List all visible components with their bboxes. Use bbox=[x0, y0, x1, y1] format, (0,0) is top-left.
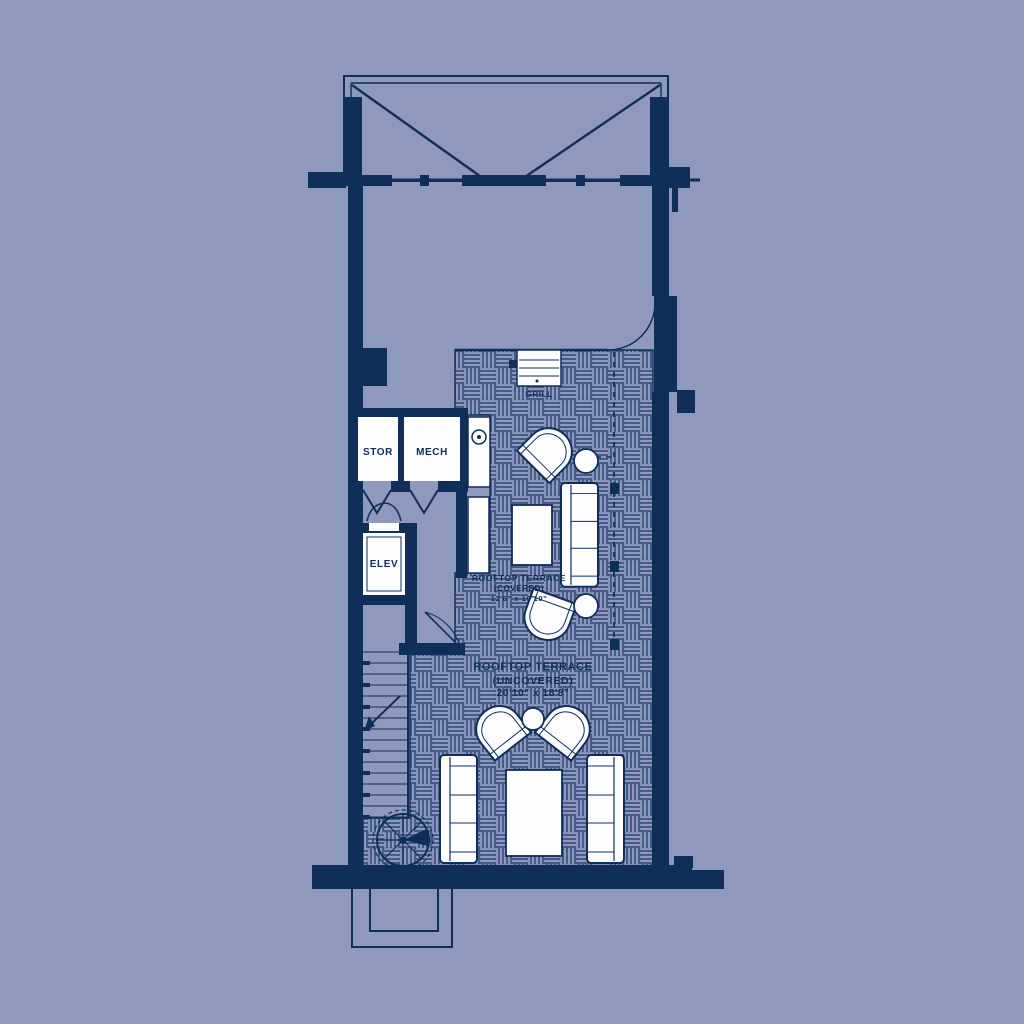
uncovered-terrace-dimensions: 20'10" x 18'8" bbox=[497, 688, 570, 699]
covered-terrace-name: ROOFTOP TERRACE bbox=[472, 573, 566, 583]
wall-right-protrusion bbox=[677, 390, 695, 413]
dining-table bbox=[506, 770, 562, 856]
column-left bbox=[344, 97, 362, 185]
wall-bottom-protrusion bbox=[692, 870, 724, 889]
wall-bottom-step bbox=[674, 856, 693, 868]
grill-label: GRILL bbox=[526, 390, 553, 399]
room-label-mech: MECH bbox=[416, 447, 448, 458]
room-label-elev: ELEV bbox=[370, 559, 399, 570]
grill bbox=[509, 350, 561, 386]
sofa bbox=[587, 755, 624, 863]
wall-right-lower bbox=[652, 392, 669, 867]
covered-terrace-qualifier: (COVERED) bbox=[494, 584, 544, 593]
uncovered-terrace-qualifier: (UNCOVERED) bbox=[493, 675, 574, 687]
sofa bbox=[440, 755, 477, 863]
wall-right-upper bbox=[652, 185, 669, 296]
sofa bbox=[561, 483, 598, 587]
coffee-table bbox=[512, 505, 552, 565]
wall-right-mid bbox=[654, 296, 677, 392]
side-table bbox=[522, 708, 544, 730]
side-table bbox=[574, 449, 598, 473]
side-table bbox=[574, 594, 598, 618]
wall-stub-left bbox=[362, 348, 387, 386]
room-label-stor: STOR bbox=[363, 447, 393, 458]
covered-terrace-dimensions: 12'6" x 19'10" bbox=[491, 594, 548, 603]
floor-plan-canvas: STOR MECH ELEV GRILL ROOFTOP TERRACE (CO… bbox=[0, 0, 1024, 1024]
floor-plan: STOR MECH ELEV GRILL ROOFTOP TERRACE (CO… bbox=[0, 0, 1024, 1024]
counter-lower bbox=[468, 497, 489, 573]
wall-bottom bbox=[312, 865, 692, 889]
uncovered-terrace-name: ROOFTOP TERRACE bbox=[473, 661, 592, 673]
grill-knob bbox=[509, 360, 517, 368]
